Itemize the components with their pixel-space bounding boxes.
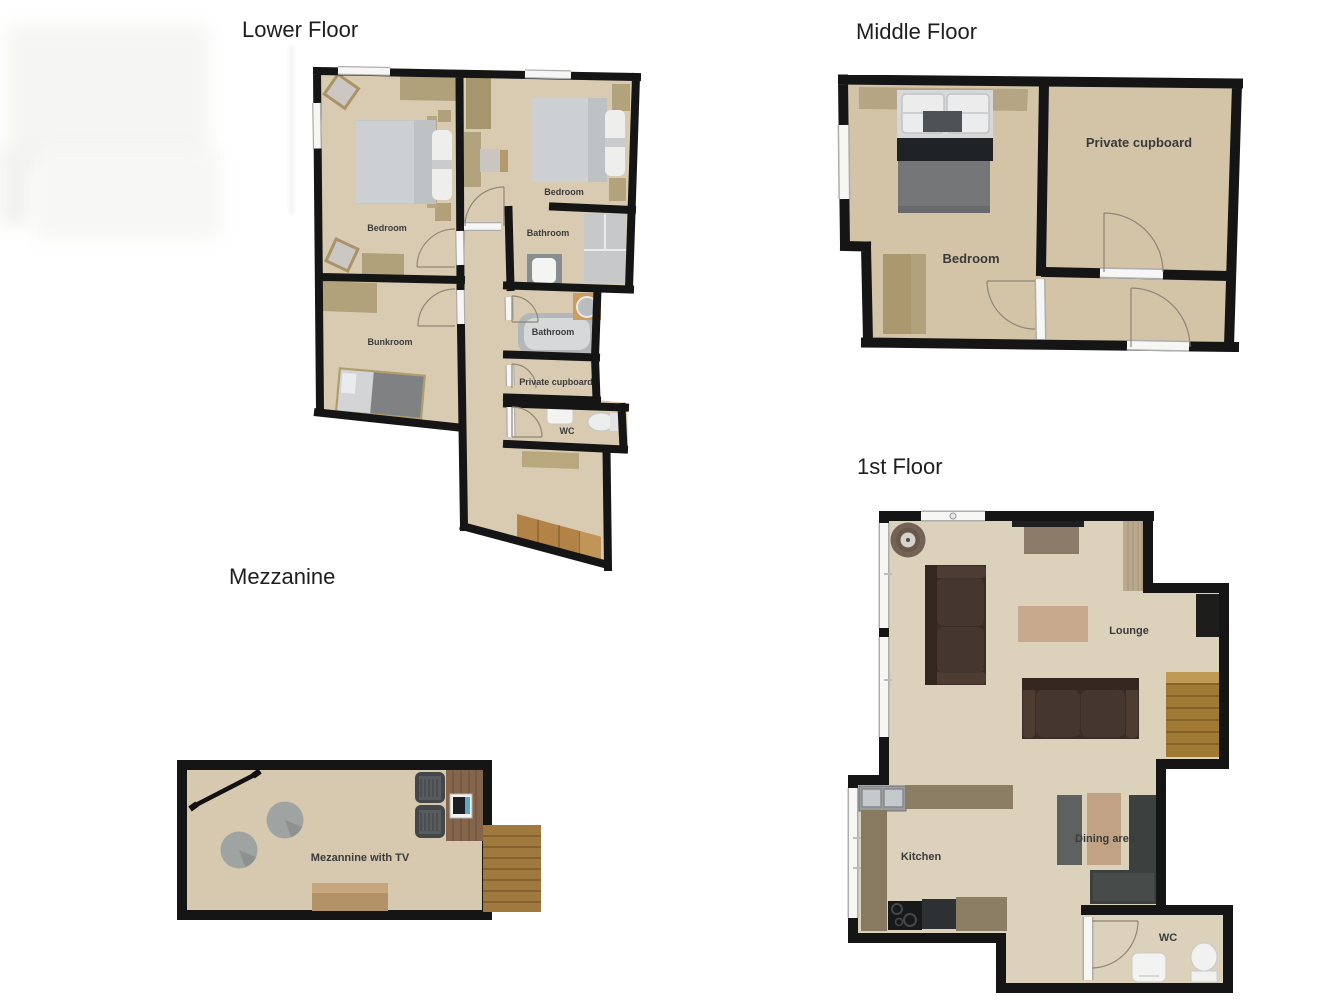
svg-text:Dining area: Dining area <box>1075 833 1136 845</box>
svg-text:Bunkroom: Bunkroom <box>368 337 413 347</box>
svg-text:1st Floor: 1st Floor <box>857 454 943 479</box>
svg-text:WC: WC <box>1159 932 1177 944</box>
svg-text:Bedroom: Bedroom <box>544 187 584 197</box>
svg-text:Mezzanine: Mezzanine <box>229 564 335 589</box>
svg-text:Bathroom: Bathroom <box>532 327 575 337</box>
svg-text:Private cupboard: Private cupboard <box>1086 135 1192 150</box>
svg-text:Bathroom: Bathroom <box>527 228 570 238</box>
svg-text:Middle Floor: Middle Floor <box>856 19 977 44</box>
svg-text:Private cupboard: Private cupboard <box>519 377 593 387</box>
svg-text:Mezannine with TV: Mezannine with TV <box>311 852 410 864</box>
svg-text:Lounge: Lounge <box>1109 625 1149 637</box>
svg-text:Bedroom: Bedroom <box>367 223 407 233</box>
svg-text:WC: WC <box>560 426 575 436</box>
svg-text:Lower Floor: Lower Floor <box>242 17 358 42</box>
svg-text:Kitchen: Kitchen <box>901 851 942 863</box>
svg-text:Bedroom: Bedroom <box>942 251 999 266</box>
